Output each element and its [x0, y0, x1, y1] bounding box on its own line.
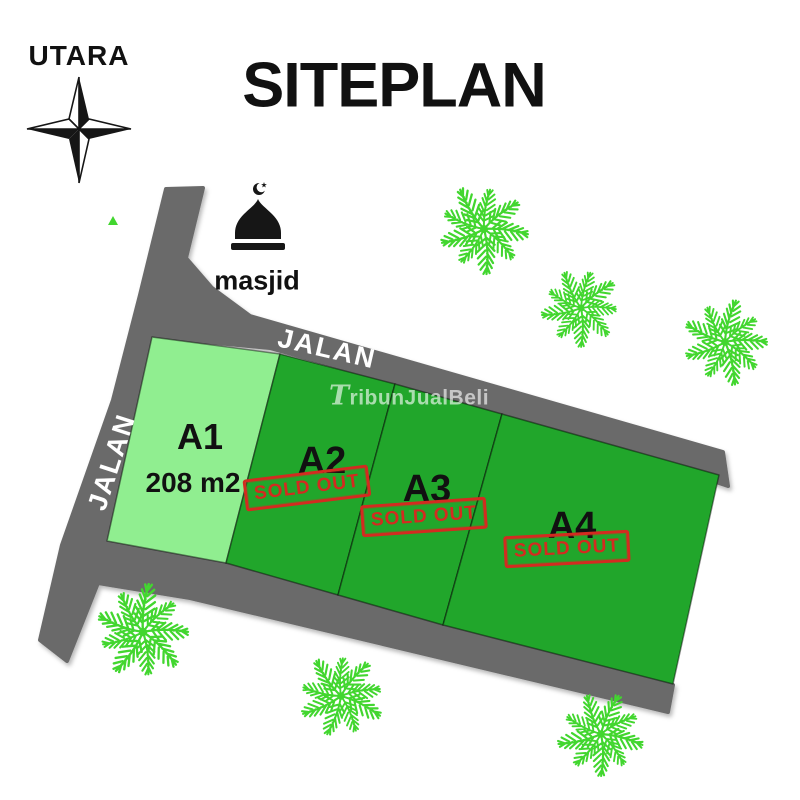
- shrub-speck-icon: [108, 216, 118, 225]
- palm-tree-icon: [538, 267, 619, 349]
- watermark: TribunJualBeli: [329, 383, 489, 410]
- palm-tree-icon: [433, 181, 535, 282]
- plot-a4-soldout-stamp: SOLD OUT: [503, 530, 631, 569]
- palm-tree-icon: [670, 284, 782, 395]
- compass-rose-icon: [27, 77, 131, 183]
- plot-a1-label: A1: [177, 419, 223, 455]
- north-label: UTARA: [29, 42, 130, 70]
- plot-a1-area: 208 m2: [146, 469, 241, 497]
- palm-tree-icon: [287, 642, 392, 746]
- mosque-icon: [231, 182, 285, 250]
- page-title: SITEPLAN: [242, 55, 546, 118]
- mosque-label: masjid: [214, 268, 300, 295]
